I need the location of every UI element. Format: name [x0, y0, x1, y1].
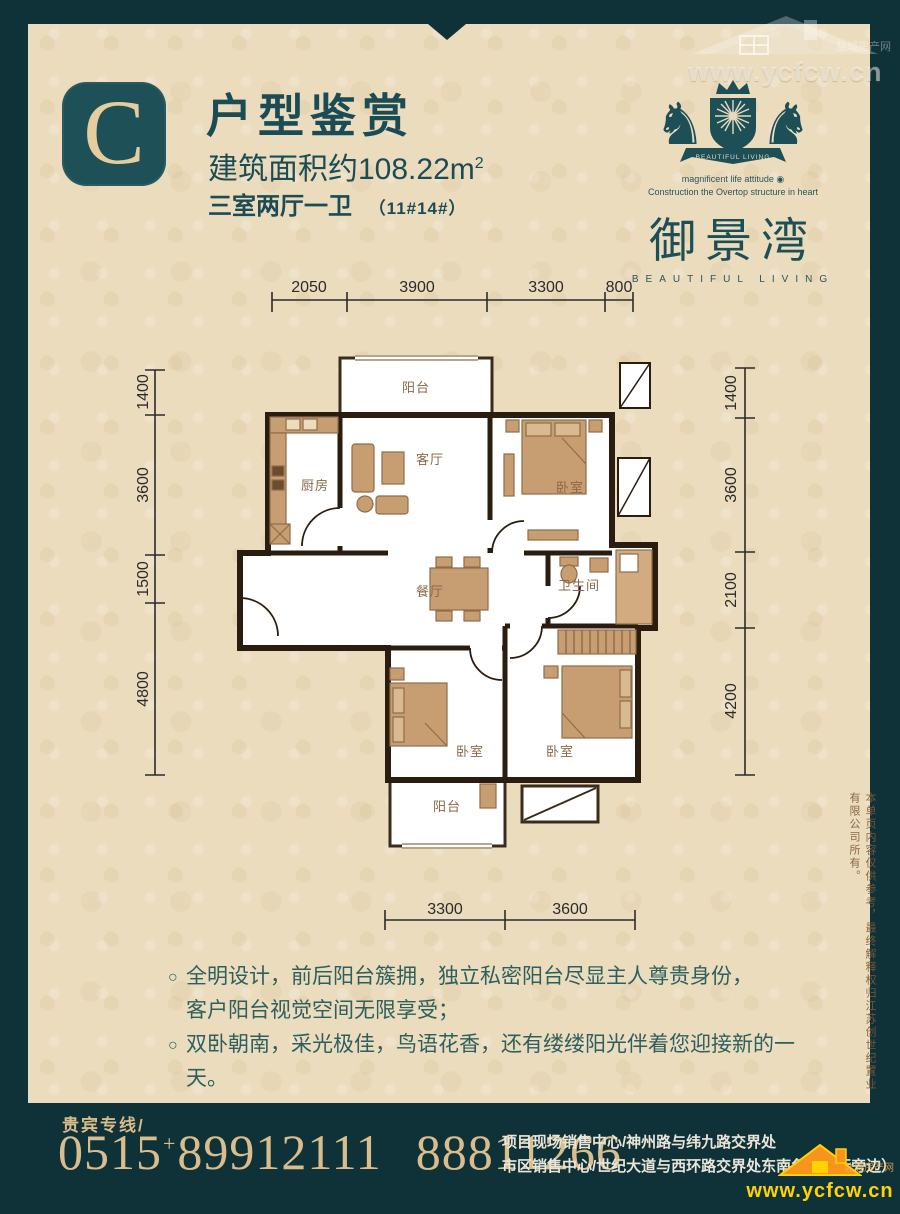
dim-right-4: 4200	[723, 683, 740, 719]
footer-bar: 贵宾专线/ 0515+8991211188811266 项目现场销售中心/神州路…	[0, 1103, 900, 1214]
disclaimer-text: 本单页内容仅供参考，最终解释权归江苏创世纪置业有限公司所有。	[846, 792, 878, 1097]
dim-left-2: 3600	[135, 467, 152, 503]
watermark-site-name: 盐城房产网	[836, 38, 891, 54]
site-url: www.ycfcw.cn	[746, 1180, 894, 1203]
site-logo: www.ycfcw.cn 盐城房产网	[746, 1141, 894, 1203]
unit-type-letter: C	[83, 86, 144, 178]
feature-text: 双卧朝南，采光极佳，鸟语花香，还有缕缕阳光伴着您迎接新的一天。	[186, 1028, 808, 1096]
dim-left-4: 4800	[135, 671, 152, 707]
crest-banner-text: BEAUTIFUL LIVING	[696, 154, 771, 161]
unit-type-badge: C	[62, 82, 166, 186]
brand-slogans: magnificent life attitude ◉ Construction…	[628, 173, 838, 199]
feature-text-continued: 客户阳台视觉空间无限享受；	[168, 994, 808, 1028]
top-notch-decoration	[428, 24, 466, 40]
flyer-page: www.ycfcw.cn 盐城房产网 C 户型鉴赏 建筑面积约108.22m2 …	[0, 0, 900, 1214]
room-label-balcony-bottom: 阳台	[433, 799, 461, 814]
page-title: 户型鉴赏	[206, 80, 414, 146]
feature-list: ○ 全明设计，前后阳台簇拥，独立私密阳台尽显主人尊贵身份， 客户阳台视觉空间无限…	[168, 960, 808, 1096]
crest-logo-icon: ♞ ♞ BEAUTIFUL LIVING	[628, 78, 838, 166]
dim-left-3: 1500	[135, 561, 152, 597]
room-label-dining: 餐厅	[416, 584, 444, 599]
phone-plus: +	[163, 1131, 176, 1156]
top-watermark: www.ycfcw.cn 盐城房产网	[688, 12, 893, 88]
brand-slogan-2: Construction the Overtop structure in he…	[628, 186, 838, 199]
area-superscript: 2	[475, 155, 484, 172]
room-label-living: 客厅	[416, 452, 444, 467]
feature-item: ○ 双卧朝南，采光极佳，鸟语花香，还有缕缕阳光伴着您迎接新的一天。	[168, 1028, 808, 1096]
layout-text: 三室两厅一卫	[208, 193, 352, 220]
area-text: 建筑面积约108.22m2	[208, 144, 484, 188]
dim-top-1: 2050	[291, 279, 327, 296]
room-label-bedroom-br: 卧室	[546, 744, 574, 759]
dim-right-1: 1400	[723, 375, 740, 411]
area-value: 建筑面积约108.22m	[208, 153, 475, 186]
dim-top-4: 800	[606, 279, 633, 296]
room-label-bedroom-tr: 卧室	[556, 480, 584, 495]
brand-name: 御景湾	[628, 202, 838, 271]
bullet-marker: ○	[168, 1029, 186, 1097]
dim-left-1: 1400	[135, 374, 152, 410]
layout-line: 三室两厅一卫 （11#14#）	[208, 186, 466, 221]
room-label-bath: 卫生间	[558, 578, 600, 593]
room-label-balcony-top: 阳台	[402, 380, 430, 395]
bullet-marker: ○	[168, 961, 186, 995]
dim-right-2: 3600	[723, 467, 740, 503]
brand-slogan-1: magnificent life attitude ◉	[628, 173, 838, 186]
feature-item: ○ 全明设计，前后阳台簇拥，独立私密阳台尽显主人尊贵身份，	[168, 960, 808, 994]
dim-right-3: 2100	[723, 572, 740, 608]
dim-top-2: 3900	[399, 279, 435, 296]
room-label-kitchen: 厨房	[301, 478, 329, 493]
svg-text:♞: ♞	[654, 92, 706, 157]
site-name: 盐城房产网	[844, 1159, 894, 1174]
building-numbers: （11#14#）	[369, 199, 467, 218]
phone-area-code: 0515	[58, 1124, 162, 1180]
svg-text:♞: ♞	[760, 92, 812, 157]
dim-bottom-1: 3300	[427, 901, 463, 918]
feature-text: 全明设计，前后阳台簇拥，独立私密阳台尽显主人尊贵身份，	[186, 960, 753, 994]
dim-bottom-2: 3600	[552, 901, 588, 918]
phone-number-1: 89912111	[177, 1124, 381, 1180]
room-label-bedroom-bl: 卧室	[456, 744, 484, 759]
dim-top-3: 3300	[528, 279, 564, 296]
brand-block: ♞ ♞ BEAUTIFUL LIVING magn	[628, 78, 838, 285]
floor-plan: 2050 3900 3300 800 1400 3600 1500 4800 1…	[130, 268, 775, 945]
